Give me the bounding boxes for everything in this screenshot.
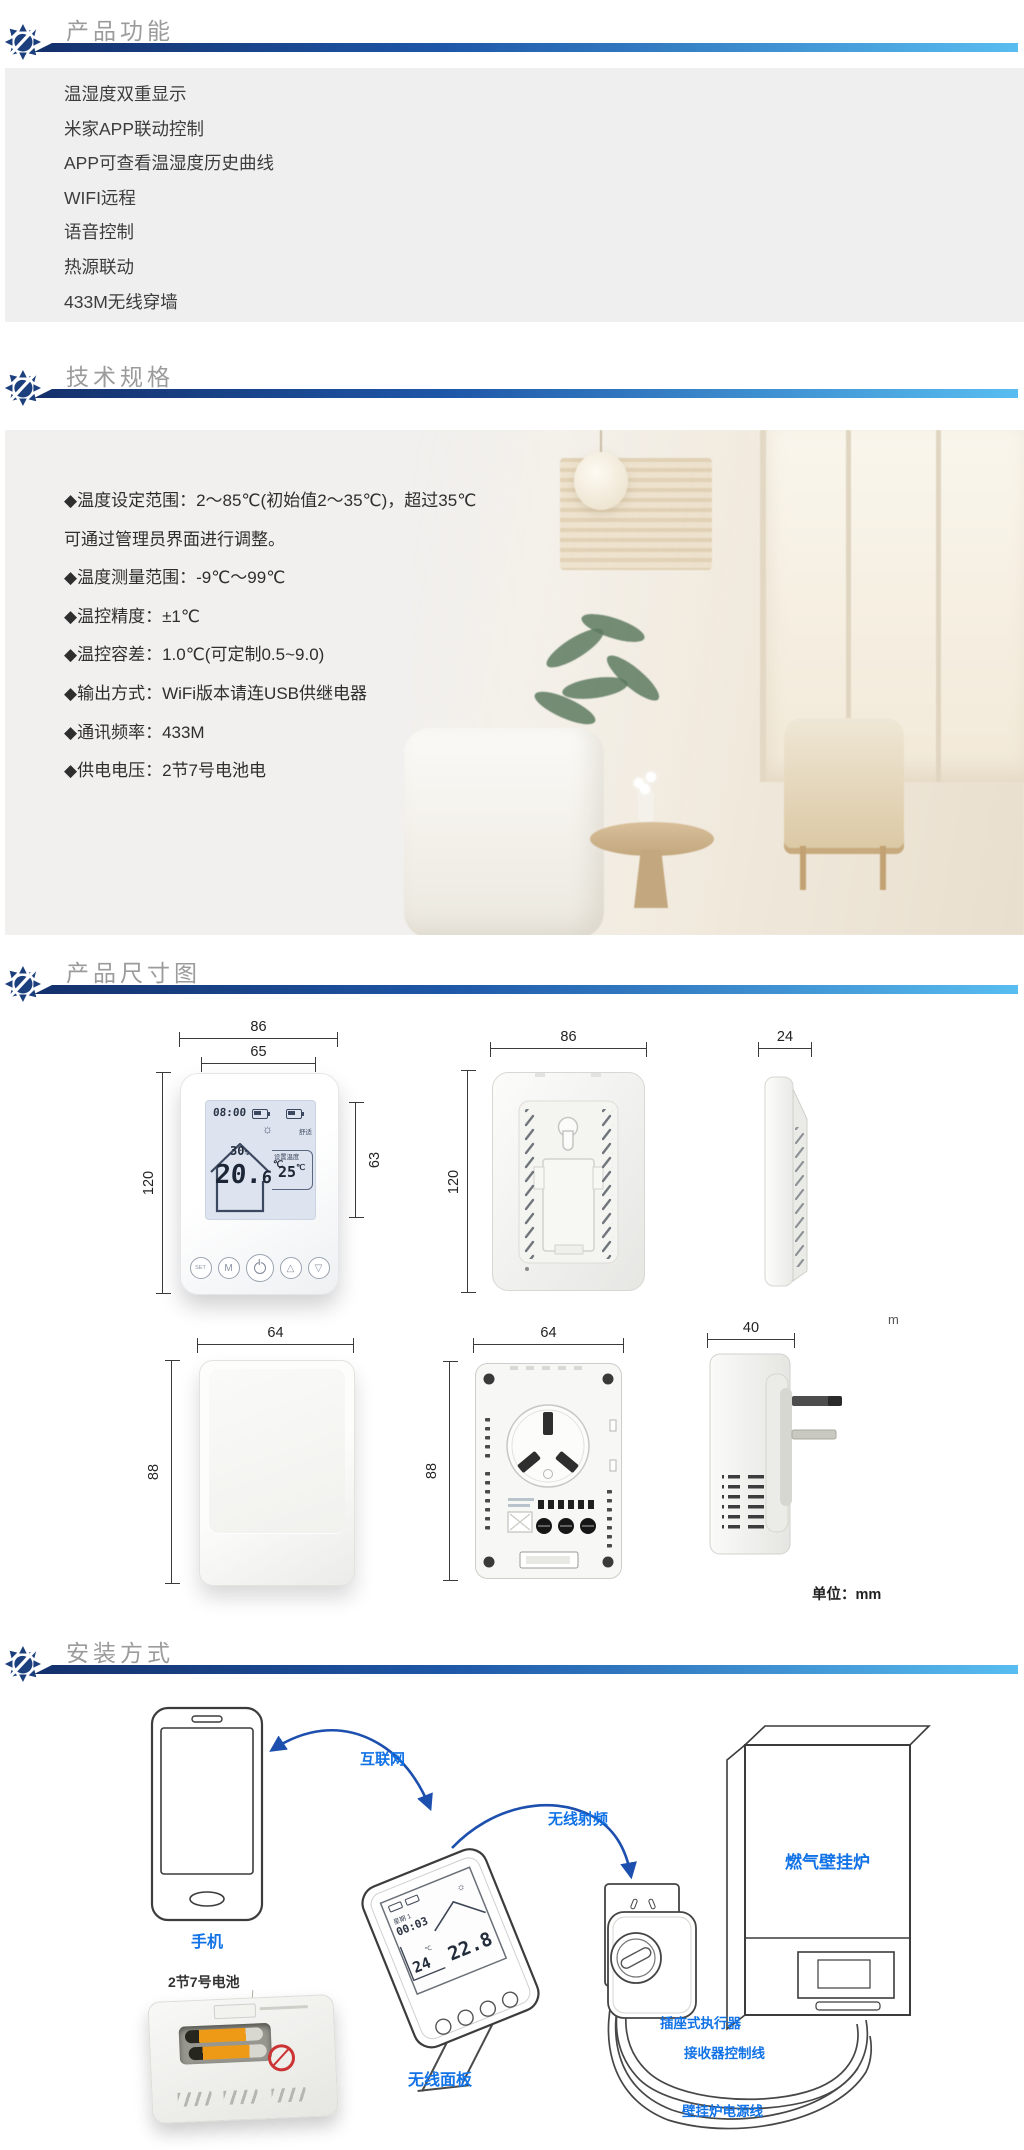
brand-gear-icon bbox=[3, 369, 41, 407]
lcd-humidity: 30% bbox=[230, 1144, 249, 1158]
spec-line: ◆温控容差：1.0℃(可定制0.5~9.0) bbox=[64, 636, 476, 675]
feature-item: 热源联动 bbox=[5, 250, 1024, 285]
section-title: 技术规格 bbox=[66, 358, 174, 392]
spec-line: ◆温度设定范围：2～85℃(初始值2～35℃)，超过35℃ bbox=[64, 482, 476, 521]
thermostat-front-view: 08:00 ☼ 舒适 30% 20.6℃ 设置温度 25℃ SET M △ ▽ bbox=[180, 1073, 339, 1295]
features-panel: 温湿度双重显示米家APP联动控制APP可查看温湿度历史曲线WIFI远程语音控制热… bbox=[5, 68, 1024, 322]
mode-button[interactable]: M bbox=[218, 1257, 240, 1279]
paper-lantern bbox=[574, 452, 628, 510]
vase bbox=[638, 790, 654, 824]
section-header-install: 安装方式 bbox=[0, 1632, 1020, 1686]
feature-item: 语音控制 bbox=[5, 215, 1024, 250]
dim-back-height: 120 bbox=[467, 1071, 468, 1292]
vent-slots bbox=[271, 2087, 306, 2102]
spec-line: ◆通讯频率：433M bbox=[64, 714, 476, 753]
boiler-drawing bbox=[727, 1726, 929, 2029]
page: 产品功能 温湿度双重显示米家APP联动控制APP可查看温湿度历史曲线WIFI远程… bbox=[0, 0, 1024, 2150]
section-divider-bar bbox=[34, 985, 1018, 994]
feature-item: APP可查看温湿度历史曲线 bbox=[5, 146, 1024, 181]
spec-line: 可通过管理员界面进行调整。 bbox=[64, 521, 476, 560]
panel-label: 无线面板 bbox=[380, 2066, 500, 2090]
feature-item: 433M无线穿墙 bbox=[5, 285, 1024, 320]
set-button[interactable]: SET bbox=[190, 1257, 212, 1279]
wireless-panel-drawing: ☼ 星期 1 00:03 24 ℃ 22.8 bbox=[340, 1844, 561, 2104]
thermostat-lcd: 08:00 ☼ 舒适 30% 20.6℃ 设置温度 25℃ bbox=[205, 1100, 316, 1220]
brand-gear-icon bbox=[3, 965, 41, 1003]
dim-front-height: 120 bbox=[162, 1073, 163, 1293]
battery-bay bbox=[179, 2023, 273, 2065]
socket-actuator-drawing bbox=[605, 1884, 696, 2018]
specs-panel: ◆温度设定范围：2～85℃(初始值2～35℃)，超过35℃可通过管理员界面进行调… bbox=[5, 430, 1024, 935]
feature-item: 温湿度双重显示 bbox=[5, 77, 1024, 112]
section-header-specs: 技术规格 bbox=[0, 356, 1020, 410]
dim-back-width: 86 bbox=[491, 1048, 646, 1049]
thermostat-side-view bbox=[761, 1075, 811, 1288]
section-header-features: 产品功能 bbox=[0, 10, 1020, 64]
battery-note-label: 2节7号电池 bbox=[168, 1972, 240, 1992]
hanger-slot bbox=[214, 2003, 257, 2019]
section-divider-bar bbox=[34, 43, 1018, 52]
section-title: 产品功能 bbox=[66, 12, 174, 46]
section-divider-bar bbox=[34, 389, 1018, 398]
dim-front-inner-width: 65 bbox=[202, 1063, 315, 1064]
section-divider-bar bbox=[34, 1665, 1018, 1674]
rf-label: 无线射频 bbox=[548, 1808, 608, 1829]
section-title: 产品尺寸图 bbox=[66, 954, 201, 988]
receiver-line-label: 接收器控制线 bbox=[684, 2042, 765, 2062]
armchair bbox=[784, 718, 904, 848]
section-title: 安装方式 bbox=[66, 1634, 174, 1668]
dim-socket-front-width: 64 bbox=[198, 1344, 353, 1345]
lcd-time: 08:00 bbox=[213, 1106, 247, 1119]
internet-arrow bbox=[272, 1730, 430, 1808]
dim-socket-front-height: 88 bbox=[171, 1361, 172, 1583]
feature-item: 米家APP联动控制 bbox=[5, 112, 1024, 147]
internet-label: 互联网 bbox=[360, 1748, 405, 1769]
actuator-label: 插座式执行器 bbox=[660, 2012, 741, 2032]
spec-line: ◆温控精度：±1℃ bbox=[64, 598, 476, 637]
up-button[interactable]: △ bbox=[280, 1257, 302, 1279]
stray-text: m bbox=[888, 1312, 899, 1327]
lcd-mode-label: 舒适 bbox=[299, 1126, 312, 1136]
spec-list: ◆温度设定范围：2～85℃(初始值2～35℃)，超过35℃可通过管理员界面进行调… bbox=[64, 482, 476, 791]
armchair-legs bbox=[792, 846, 896, 890]
lcd-set-label: 设置温度 bbox=[274, 1152, 299, 1161]
thermostat-back-view bbox=[491, 1071, 646, 1292]
dim-front-outer-width: 86 bbox=[180, 1038, 337, 1039]
thermostat-buttons: SET M △ ▽ bbox=[181, 1254, 338, 1282]
aaa-battery bbox=[188, 2044, 266, 2060]
aaa-battery bbox=[185, 2027, 263, 2043]
lamp-cord bbox=[600, 430, 602, 454]
boiler-power-line-label: 壁挂炉电源线 bbox=[682, 2100, 763, 2120]
vent-slots bbox=[223, 2089, 258, 2104]
receiver-front-view bbox=[199, 1360, 355, 1586]
down-button[interactable]: ▽ bbox=[308, 1257, 330, 1279]
unit-note: 单位：mm bbox=[812, 1583, 881, 1604]
battery-icon bbox=[252, 1109, 268, 1119]
boiler-label: 燃气壁挂炉 bbox=[745, 1848, 910, 1873]
power-icon bbox=[254, 1262, 266, 1274]
dim-front-screen-height: 63 bbox=[355, 1103, 356, 1217]
battery-compartment-photo bbox=[147, 1994, 338, 2124]
phone-drawing bbox=[152, 1708, 262, 1920]
sun-icon: ☼ bbox=[262, 1122, 273, 1136]
brand-gear-icon bbox=[3, 23, 41, 61]
receiver-side-view bbox=[708, 1352, 848, 1558]
spec-line: ◆输出方式：WiFi版本请连USB供继电器 bbox=[64, 675, 476, 714]
lcd-set-value: 25℃ bbox=[278, 1163, 305, 1181]
flower bbox=[646, 772, 656, 782]
brand-gear-icon bbox=[3, 1645, 41, 1683]
dim-side-width: 24 bbox=[759, 1048, 811, 1049]
flower bbox=[640, 784, 650, 794]
feature-item: WIFI远程 bbox=[5, 181, 1024, 216]
spec-line: ◆供电电压：2节7号电池电 bbox=[64, 752, 476, 791]
vent-slots bbox=[177, 2091, 212, 2106]
dim-socket-back-height: 88 bbox=[449, 1362, 450, 1580]
battery-icon bbox=[286, 1109, 302, 1119]
receiver-back-view bbox=[474, 1362, 623, 1580]
room-photo bbox=[412, 430, 1024, 935]
phone-label: 手机 bbox=[152, 1928, 262, 1952]
dim-socket-side-width: 40 bbox=[708, 1339, 794, 1340]
spec-line: ◆温度测量范围：-9℃～99℃ bbox=[64, 559, 476, 598]
power-button[interactable] bbox=[246, 1254, 274, 1282]
dim-socket-back-width: 64 bbox=[474, 1344, 623, 1345]
section-header-dimensions: 产品尺寸图 bbox=[0, 952, 1020, 1006]
